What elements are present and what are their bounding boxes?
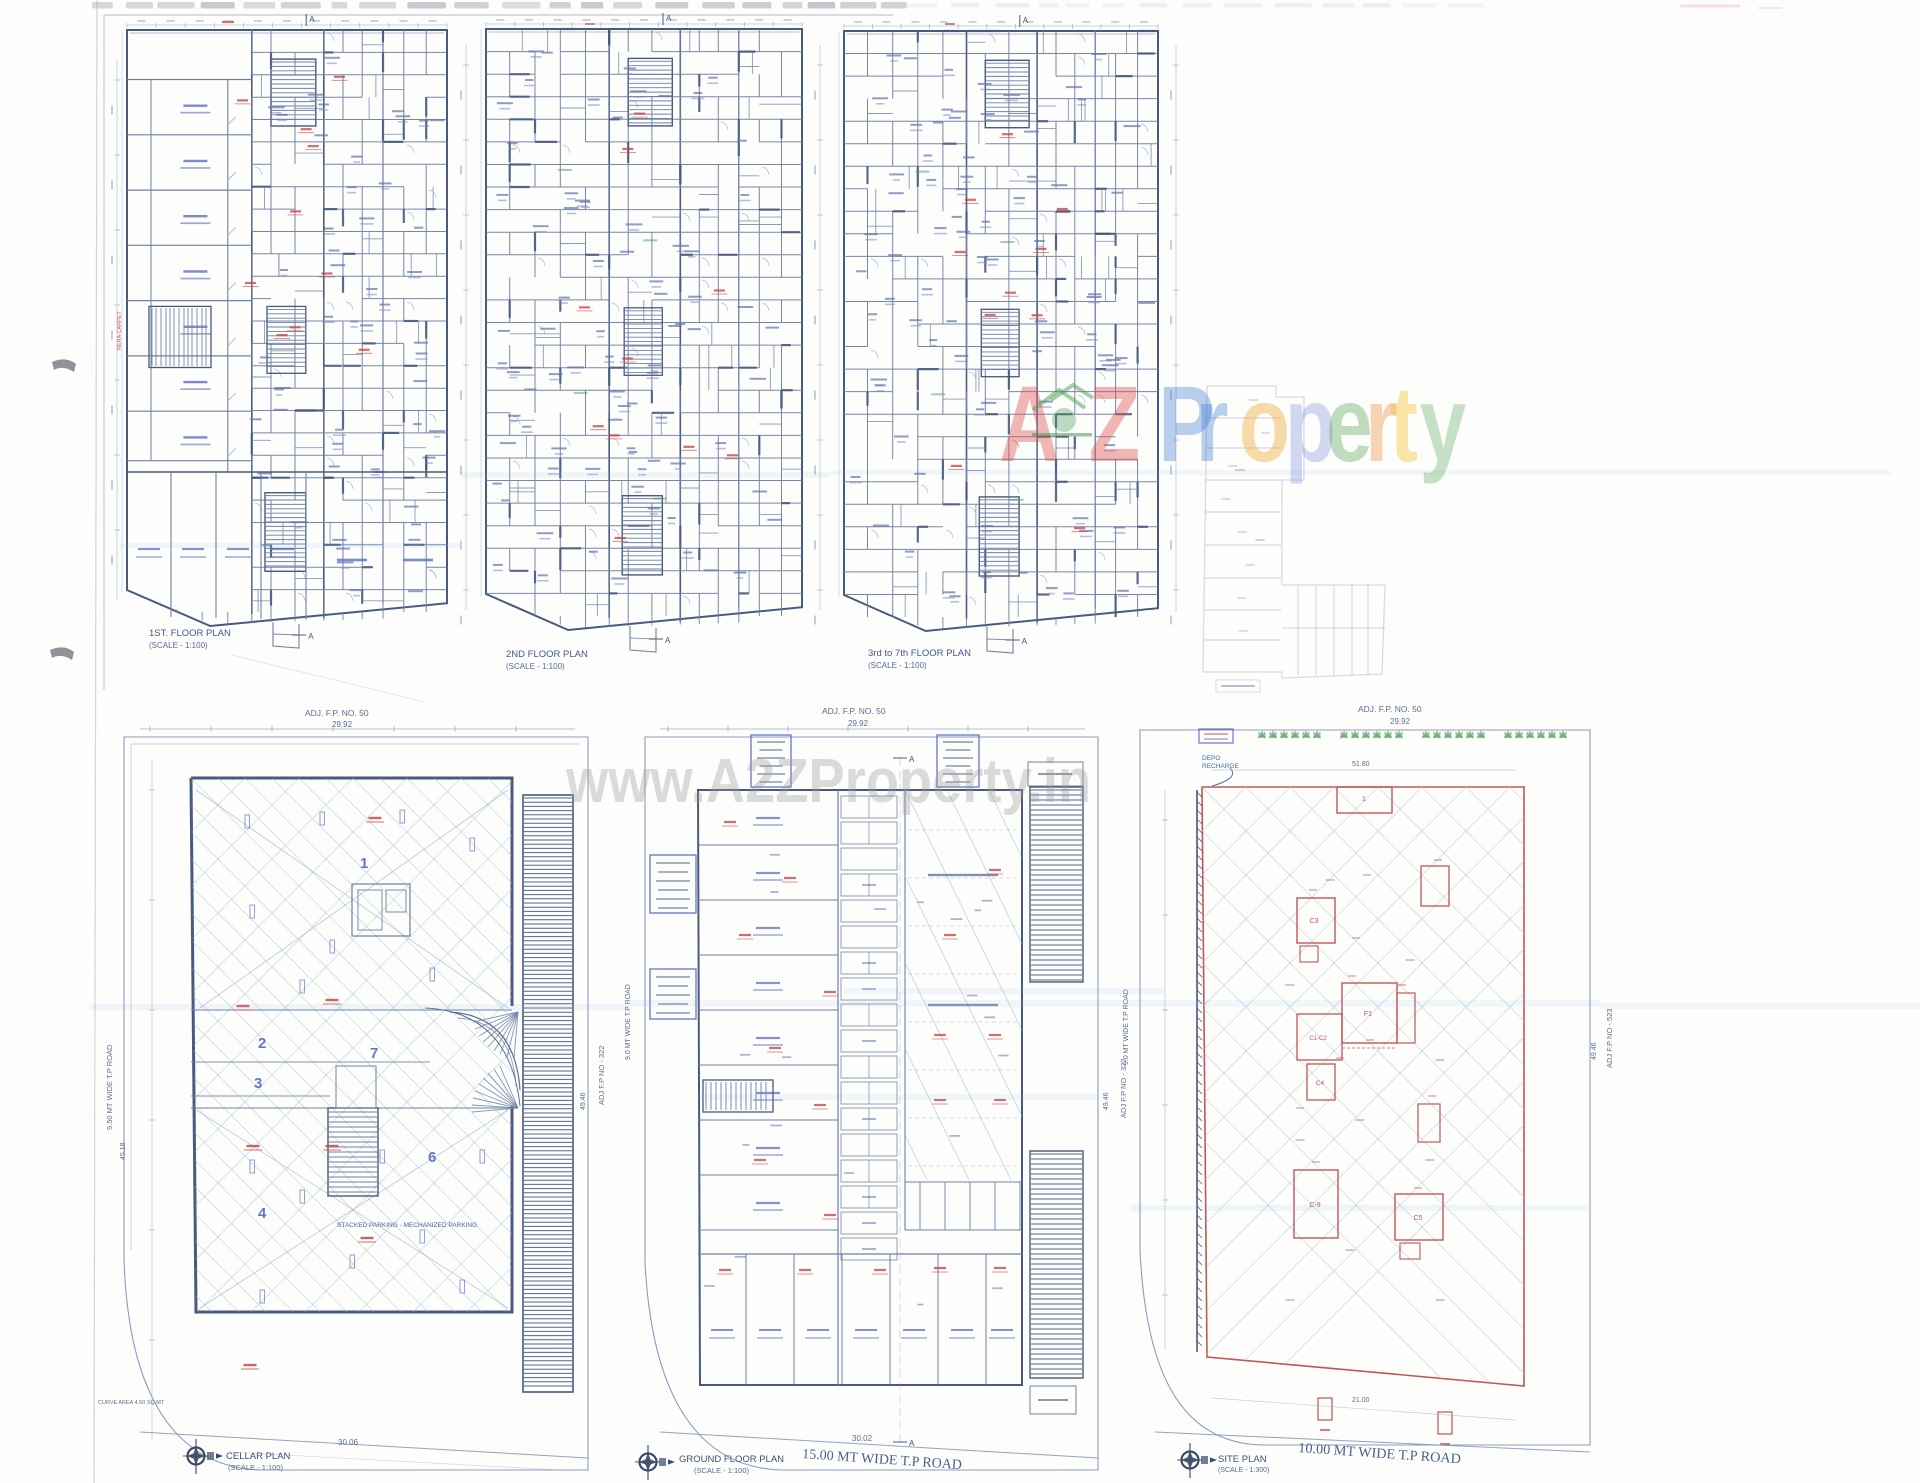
- svg-text:A: A: [309, 15, 315, 24]
- svg-text:Z: Z: [1089, 363, 1140, 485]
- svg-text:(SCALE - 1:100): (SCALE - 1:100): [868, 661, 927, 670]
- svg-text:A: A: [665, 636, 671, 645]
- svg-text:49.46: 49.46: [1591, 1042, 1598, 1060]
- svg-text:(SCALE - 1:100): (SCALE - 1:100): [228, 1463, 284, 1472]
- svg-text:C3: C3: [1310, 918, 1319, 925]
- svg-text:45.18: 45.18: [120, 1142, 127, 1160]
- svg-text:(SCALE - 1:300): (SCALE - 1:300): [1218, 1467, 1269, 1474]
- svg-text:A: A: [1022, 637, 1028, 646]
- svg-text:ADJ F.P NO - 322: ADJ F.P NO - 322: [1119, 1059, 1128, 1118]
- svg-text:30.02: 30.02: [852, 1434, 873, 1443]
- svg-text:F1: F1: [1364, 1011, 1372, 1018]
- svg-text:C4: C4: [1316, 1080, 1325, 1087]
- svg-text:29.92: 29.92: [332, 720, 353, 729]
- svg-text:1: 1: [1362, 796, 1366, 803]
- svg-text:30.06: 30.06: [338, 1438, 359, 1447]
- svg-text:3: 3: [254, 1075, 262, 1092]
- svg-text:(SCALE - 1:100): (SCALE - 1:100): [149, 641, 208, 650]
- svg-text:51.80: 51.80: [1352, 761, 1370, 768]
- svg-text:y: y: [1420, 363, 1467, 485]
- svg-text:3rd to 7th FLOOR PLAN: 3rd to 7th FLOOR PLAN: [868, 648, 971, 659]
- svg-text:GROUND FLOOR PLAN: GROUND FLOOR PLAN: [679, 1454, 784, 1465]
- svg-text:C5: C5: [1414, 1215, 1423, 1222]
- svg-text:4: 4: [258, 1205, 267, 1222]
- svg-text:(SCALE - 1:100): (SCALE - 1:100): [694, 1466, 750, 1475]
- svg-text:ADJ F.P NO - 322: ADJ F.P NO - 322: [597, 1046, 606, 1105]
- svg-text:1ST. FLOOR PLAN: 1ST. FLOOR PLAN: [149, 628, 231, 639]
- svg-text:29.92: 29.92: [1390, 717, 1411, 726]
- svg-text:9.0 MT WIDE T.P ROAD: 9.0 MT WIDE T.P ROAD: [625, 984, 632, 1060]
- svg-text:STACKED PARKING - MECHANIZED P: STACKED PARKING - MECHANIZED PARKING: [337, 1222, 477, 1229]
- svg-text:2: 2: [258, 1035, 266, 1052]
- svg-text:A: A: [308, 632, 314, 641]
- svg-text:o: o: [1239, 363, 1290, 485]
- svg-text:A: A: [999, 363, 1060, 485]
- svg-text:49.46: 49.46: [580, 1092, 587, 1110]
- svg-text:CELLAR PLAN: CELLAR PLAN: [226, 1451, 291, 1462]
- svg-text:6: 6: [428, 1149, 436, 1166]
- svg-text:49.46: 49.46: [1103, 1092, 1110, 1110]
- svg-text:t: t: [1390, 363, 1418, 485]
- svg-text:RECHARGE: RECHARGE: [1202, 763, 1240, 770]
- svg-text:ADJ. F.P. NO. 50: ADJ. F.P. NO. 50: [822, 706, 886, 716]
- svg-text:1: 1: [360, 855, 368, 872]
- svg-text:DEPO: DEPO: [1202, 755, 1220, 762]
- svg-text:CURVE AREA 4.50 SQ.MT: CURVE AREA 4.50 SQ.MT: [98, 1400, 165, 1406]
- svg-text:29.92: 29.92: [848, 719, 869, 728]
- svg-text:9.50 MT WIDE T.P ROAD: 9.50 MT WIDE T.P ROAD: [105, 1044, 114, 1130]
- svg-text:www.A2ZProperty.in: www.A2ZProperty.in: [565, 747, 1091, 816]
- svg-text:ADJ. F.P. NO. 50: ADJ. F.P. NO. 50: [305, 708, 369, 718]
- svg-text:7: 7: [370, 1045, 378, 1062]
- svg-text:21.00: 21.00: [1352, 1397, 1370, 1404]
- svg-text:r: r: [1196, 363, 1229, 485]
- svg-text:ADJ. F.P. NO. 50: ADJ. F.P. NO. 50: [1358, 704, 1422, 714]
- svg-text:2ND FLOOR PLAN: 2ND FLOOR PLAN: [506, 649, 588, 660]
- svg-text:C1-C2: C1-C2: [1309, 1036, 1327, 1042]
- svg-text:ADJ F.P NO - 523: ADJ F.P NO - 523: [1605, 1009, 1614, 1068]
- svg-text:SITE PLAN: SITE PLAN: [1218, 1454, 1267, 1465]
- svg-text:A: A: [1023, 16, 1029, 25]
- svg-text:(SCALE - 1:100): (SCALE - 1:100): [506, 662, 565, 671]
- svg-text:A: A: [666, 14, 672, 23]
